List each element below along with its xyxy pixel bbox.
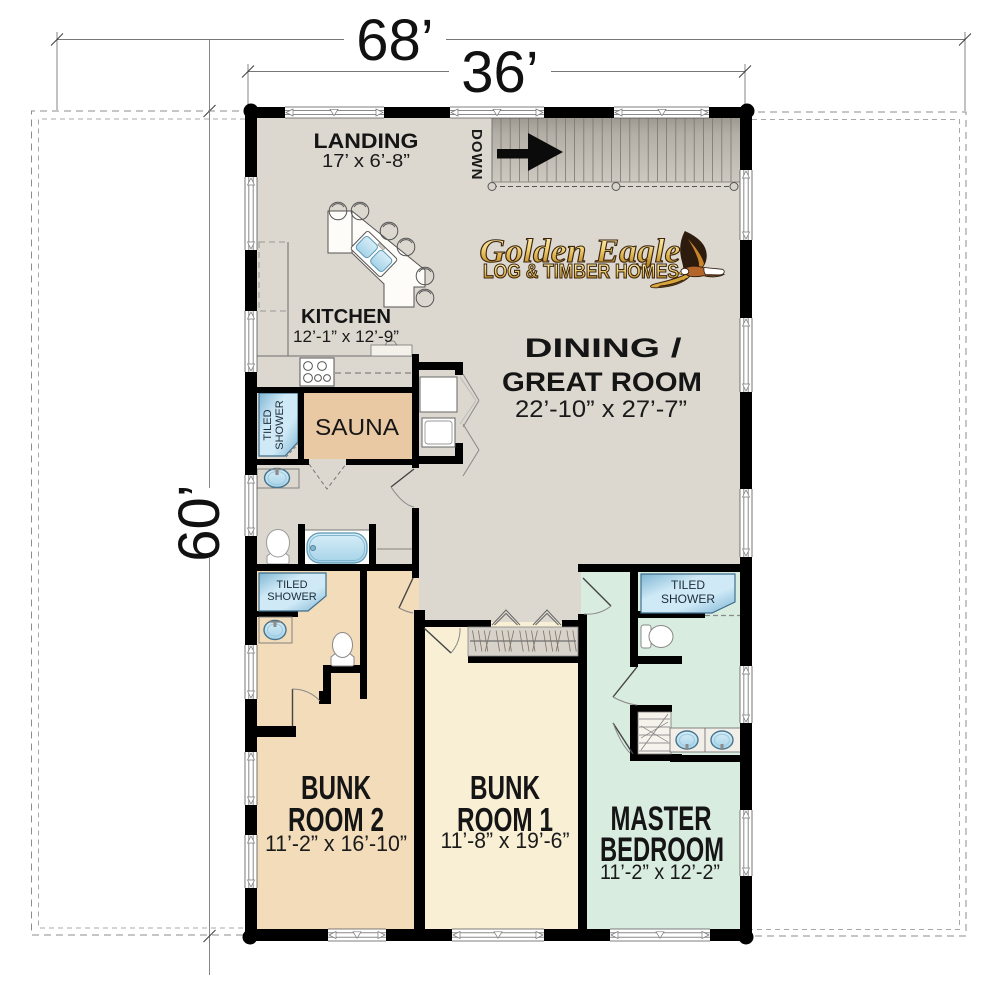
svg-text:GREAT ROOM: GREAT ROOM (502, 367, 702, 397)
svg-text:SAUNA: SAUNA (315, 414, 400, 440)
svg-text:17’ x 6’-8”: 17’ x 6’-8” (322, 151, 410, 171)
svg-text:SHOWER: SHOWER (661, 592, 715, 606)
svg-text:SHOWER: SHOWER (267, 591, 317, 603)
svg-text:11’-8” x 19’-6”: 11’-8” x 19’-6” (441, 828, 570, 853)
svg-text:60’: 60’ (167, 484, 232, 561)
svg-text:68’: 68’ (356, 8, 433, 73)
svg-text:22’-10” x 27’-7”: 22’-10” x 27’-7” (515, 396, 687, 423)
svg-text:DOWN: DOWN (468, 129, 485, 181)
svg-text:12’-1” x 12’-9”: 12’-1” x 12’-9” (293, 327, 399, 346)
svg-text:KITCHEN: KITCHEN (301, 306, 391, 328)
svg-text:TILED: TILED (671, 578, 705, 592)
svg-text:LANDING: LANDING (314, 130, 419, 153)
svg-text:11’-2” x 16’-10”: 11’-2” x 16’-10” (265, 831, 407, 856)
svg-text:DINING /: DINING / (525, 333, 683, 363)
svg-text:LOG & TIMBER HOMES: LOG & TIMBER HOMES (483, 261, 679, 283)
svg-text:11’-2” x 12’-2”: 11’-2” x 12’-2” (600, 861, 720, 884)
svg-text:36’: 36’ (461, 40, 538, 105)
svg-text:TILED: TILED (276, 579, 307, 591)
